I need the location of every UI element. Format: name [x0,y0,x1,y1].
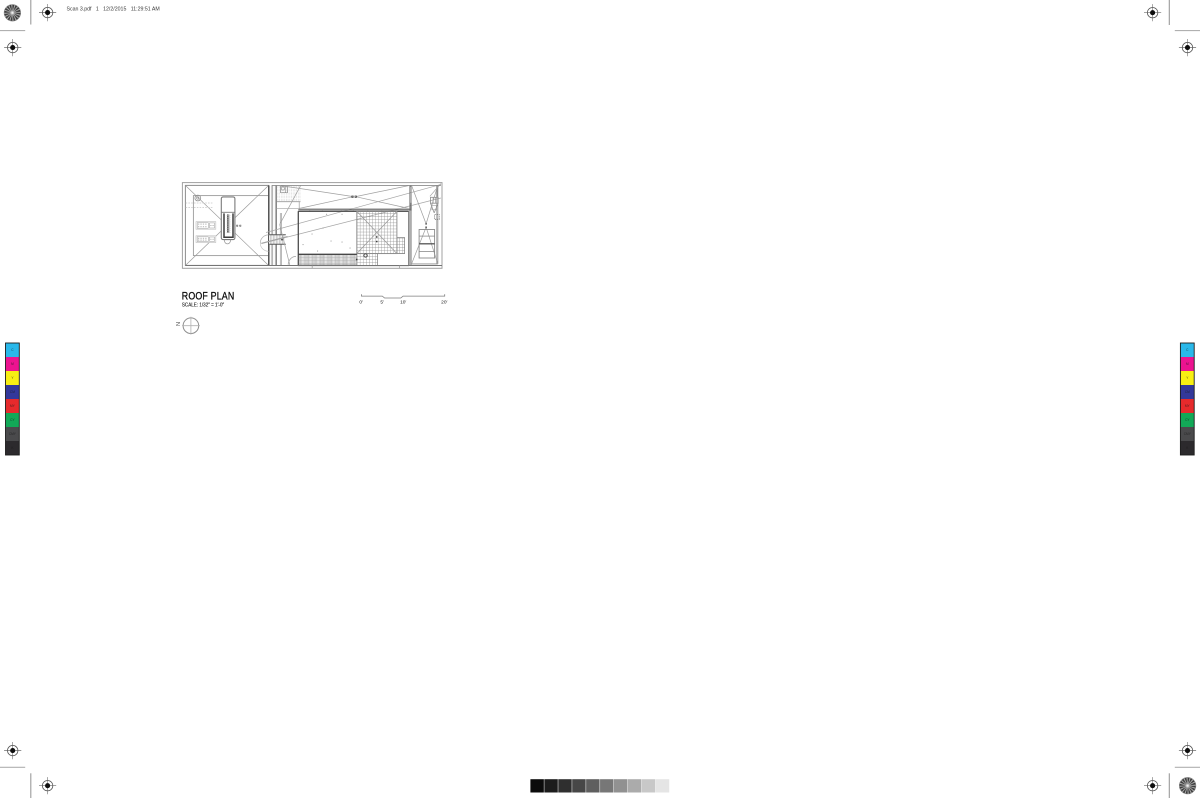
svg-text:CM: CM [1185,390,1190,394]
svg-text:ROOF PLAN: ROOF PLAN [182,291,235,303]
svg-text:N: N [176,322,182,326]
svg-text:CMY: CMY [9,432,17,436]
svg-text:5′: 5′ [380,300,384,306]
svg-text:Scan 3.pdf 1 12/2/2015 1: Scan 3.pdf 1 12/2/2015 11:29:51 AM [67,6,161,12]
svg-text:SCALE: 1/32″ = 1′-0″: SCALE: 1/32″ = 1′-0″ [182,302,224,308]
svg-text:20′: 20′ [441,300,447,306]
svg-text:CMY: CMY [1184,432,1192,436]
svg-text:M: M [1186,362,1189,366]
svg-text:CM: CM [10,390,15,394]
svg-text:0′: 0′ [359,300,363,306]
svg-text:M: M [11,362,14,366]
svg-text:10′: 10′ [400,300,406,306]
